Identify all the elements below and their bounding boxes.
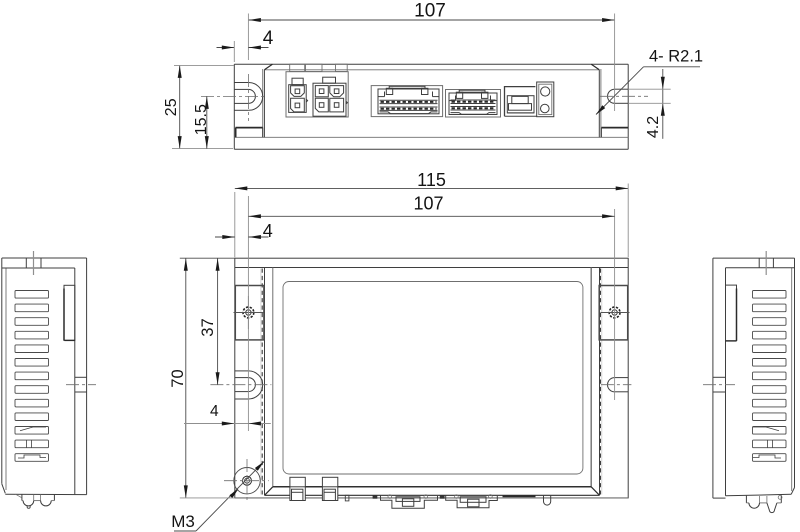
svg-text:4: 4 (210, 403, 219, 420)
svg-text:25: 25 (163, 98, 180, 116)
svg-text:M3: M3 (171, 512, 195, 531)
svg-text:37: 37 (199, 318, 217, 336)
svg-text:107: 107 (413, 194, 443, 214)
svg-text:15.5: 15.5 (193, 104, 210, 135)
svg-text:107: 107 (414, 0, 446, 21)
svg-text:115: 115 (417, 170, 446, 190)
svg-text:70: 70 (169, 369, 187, 387)
svg-text:4: 4 (263, 221, 273, 241)
svg-text:4: 4 (263, 28, 274, 49)
svg-text:4.2: 4.2 (645, 116, 662, 138)
svg-text:4- R2.1: 4- R2.1 (649, 48, 703, 66)
